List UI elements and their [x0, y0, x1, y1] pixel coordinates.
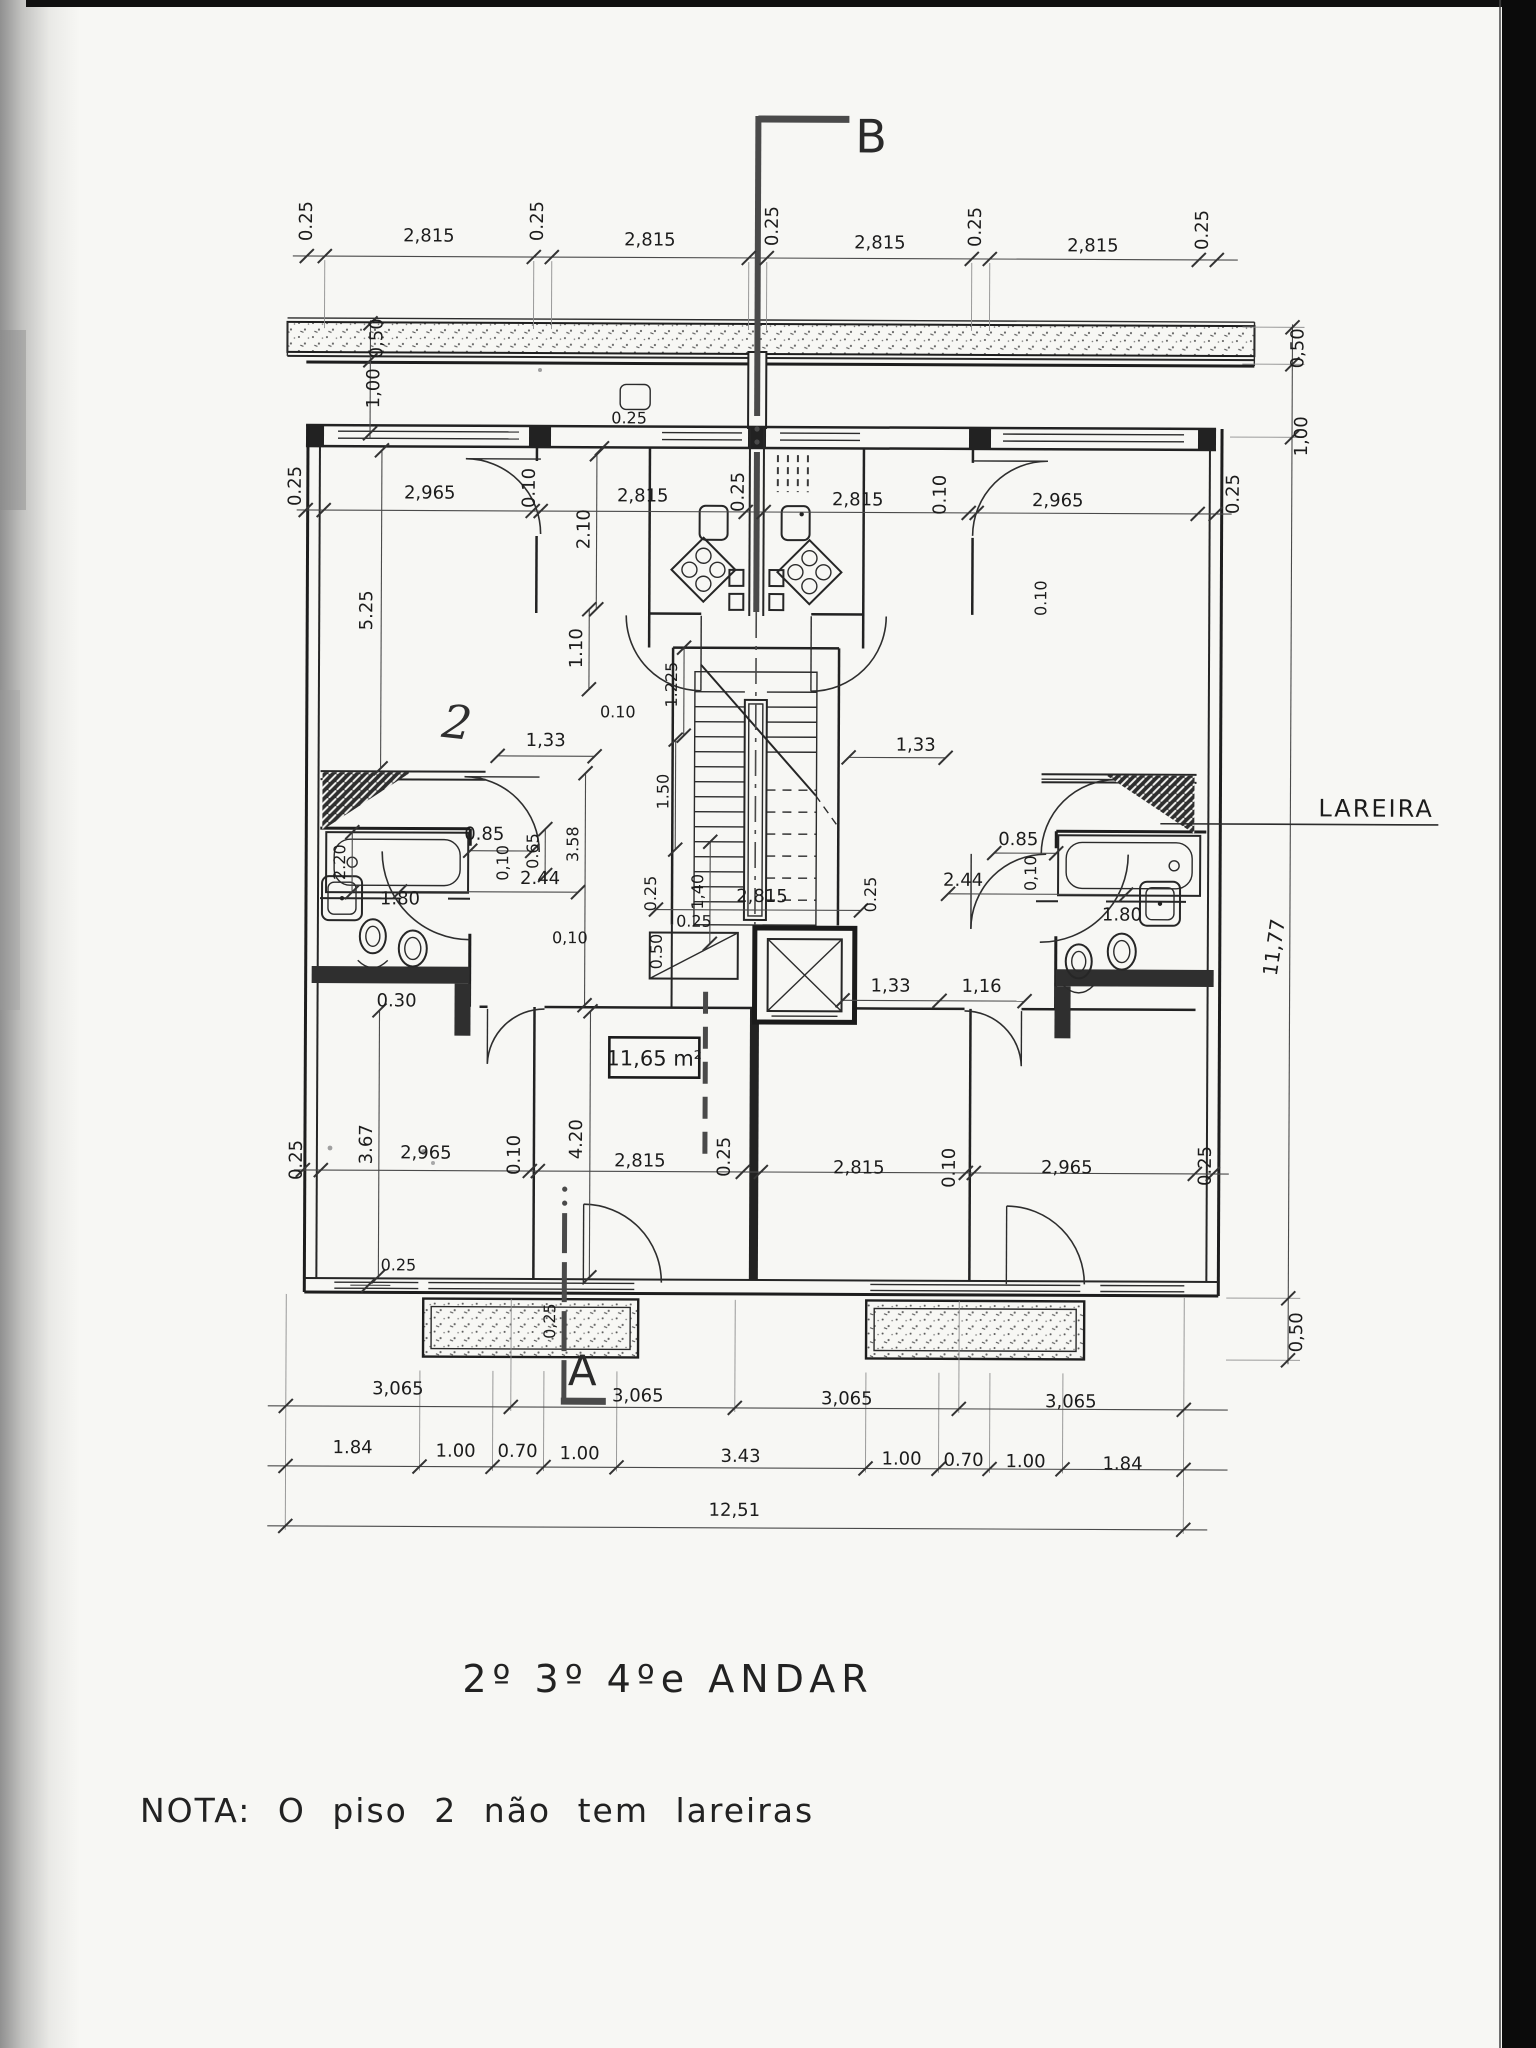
dim-text: 1,16 [962, 976, 1002, 997]
dim-text: 0.25 [1192, 210, 1213, 250]
dim-text: 0.25 [285, 466, 306, 506]
dim-text: 2,815 [854, 232, 906, 253]
floor-plan-drawing: B A [0, 0, 1536, 2048]
dim-text: 3,065 [372, 1378, 424, 1399]
dim-text: 0,10 [1021, 855, 1040, 891]
dim-text: 0.25 [676, 912, 712, 931]
dim-text: 0.10 [939, 1148, 960, 1188]
scanned-sheet: B A [0, 0, 1536, 2048]
dim-text: 2,815 [614, 1150, 666, 1171]
dim-text: 0.30 [376, 990, 416, 1011]
dim-text: 1,33 [871, 975, 911, 996]
dim-text: 0,50 [1286, 1312, 1307, 1352]
dim-text: 2,815 [736, 886, 788, 907]
dim-text: 2,815 [617, 485, 669, 506]
dim-text: 0,50 [1287, 328, 1308, 368]
dim-text: 0,10 [493, 845, 512, 881]
dim-text: 0.70 [498, 1441, 538, 1462]
dim-text: 3,065 [612, 1385, 664, 1406]
windows-bottom [334, 1282, 1184, 1292]
scan-top-bar [26, 0, 1536, 7]
dim-text: 3.67 [356, 1124, 377, 1164]
dim-text: 1.80 [380, 888, 420, 909]
top-balcony [287, 318, 1254, 430]
dim-text: 3.43 [720, 1446, 760, 1467]
dim-text: 1.00 [559, 1443, 599, 1464]
scan-left-streak [0, 330, 26, 510]
stove-right [777, 540, 841, 604]
elevator [754, 928, 854, 1022]
bidet-right [1108, 934, 1136, 970]
dim-text: 0.25 [965, 207, 986, 247]
dim-text: 2,965 [400, 1142, 452, 1163]
dim-text: 2,815 [624, 229, 676, 250]
dim-text: 0.10 [600, 702, 636, 721]
dim-text: 1.50 [653, 774, 672, 810]
dim-text: 1,00 [1291, 416, 1312, 456]
sheet-title: 2º 3º 4ºe ANDAR [462, 1657, 873, 1701]
dim-text: 2,965 [404, 482, 456, 503]
dim-text: 2,815 [403, 225, 455, 246]
dim-text: 2.10 [574, 509, 595, 549]
dim-text: 1.00 [436, 1441, 476, 1462]
dim-text: 0.70 [943, 1450, 983, 1471]
dim-text: 3.58 [563, 826, 582, 862]
stove-left [671, 538, 735, 602]
dim-text: 0.10 [504, 1135, 525, 1175]
dim-text: 0.25 [1195, 1146, 1216, 1186]
dim-text: 1,00 [363, 368, 384, 408]
sheet-note: NOTA: O piso 2 não tem lareiras [140, 1791, 814, 1830]
dim-text: 0.25 [728, 472, 749, 512]
dim-text: 3,065 [821, 1388, 873, 1409]
dim-text: 0,50 [366, 318, 387, 358]
bathroom-right [1035, 831, 1214, 1039]
lareira-label: LAREIRA [1318, 794, 1434, 823]
bidet-left [399, 930, 427, 966]
fireplace-callout: LAREIRA [1160, 794, 1438, 825]
dim-text: 1.84 [1102, 1453, 1142, 1474]
dim-text: 1,33 [526, 730, 566, 751]
dim-text: 1,33 [896, 735, 936, 756]
dim-text: 11,77 [1258, 917, 1290, 977]
kitchen-sink-right [782, 506, 810, 540]
bottom-balconies [423, 1299, 1084, 1360]
dim-text: 1.10 [566, 628, 587, 668]
dim-text: 1.00 [1005, 1451, 1045, 1472]
dim-text: 2.20 [330, 844, 349, 880]
flue-box [620, 384, 650, 409]
dim-text: 2,815 [832, 489, 884, 510]
section-a-label: A [568, 1346, 597, 1395]
dim-text: 2.44 [943, 870, 983, 891]
area-label-box: 11,65 m² [606, 1037, 702, 1077]
kitchen-sink-left [700, 506, 728, 540]
dim-text: 0.50 [647, 934, 666, 970]
dim-text: 2,965 [1041, 1157, 1093, 1178]
dim-text: 0.25 [762, 206, 783, 246]
dim-text: 4.20 [566, 1119, 587, 1159]
dim-text: 0.25 [861, 877, 880, 913]
dim-text: 0,10 [552, 928, 588, 947]
dim-text: 5.25 [356, 590, 377, 630]
fireplace-right [1106, 776, 1194, 834]
dim-text: 0.25 [714, 1137, 735, 1177]
dim-text: 0.25 [611, 408, 647, 427]
dim-text: 1.225 [662, 662, 681, 708]
section-b-label: B [855, 109, 887, 163]
dim-text: 2.44 [520, 868, 560, 889]
dim-text: 0.65 [523, 833, 542, 869]
vent-dashed-line [705, 992, 706, 1160]
dim-text: 0.25 [286, 1140, 307, 1180]
dim-text: 0.25 [296, 201, 317, 241]
dim-text: 2,815 [833, 1157, 885, 1178]
scan-right-bar [1502, 0, 1536, 2048]
dim-text: 12,51 [709, 1500, 761, 1521]
scan-left-shadow [0, 0, 80, 2048]
dim-text: 0.25 [381, 1255, 417, 1274]
dim-text: 0.25 [641, 876, 660, 912]
dim-text: 3,065 [1045, 1391, 1097, 1412]
dim-text: 0.85 [998, 829, 1038, 850]
dim-text: 0.10 [1031, 580, 1050, 616]
dim-text: 1.00 [881, 1449, 921, 1470]
dim-text: 0.25 [527, 201, 548, 241]
dim-text: 0.10 [930, 475, 951, 515]
dim-text: 1.80 [1102, 904, 1142, 925]
dim-text: 2,815 [1067, 235, 1119, 256]
dim-text: 1,40 [688, 874, 707, 910]
dim-text: 0,25 [540, 1303, 559, 1339]
dim-text: 1.84 [333, 1437, 373, 1458]
dim-text: 2,965 [1032, 490, 1084, 511]
dim-text: 0.25 [1223, 474, 1244, 514]
dim-text: 0.10 [519, 468, 540, 508]
fireplace-left [322, 772, 410, 830]
handwritten-mark: 2 [439, 694, 475, 751]
area-label: 11,65 m² [606, 1046, 702, 1070]
plan: B A [267, 107, 1441, 1538]
toilet-left [360, 919, 386, 953]
scan-left-streak2 [0, 690, 20, 1010]
dim-text: 0.85 [464, 824, 504, 845]
